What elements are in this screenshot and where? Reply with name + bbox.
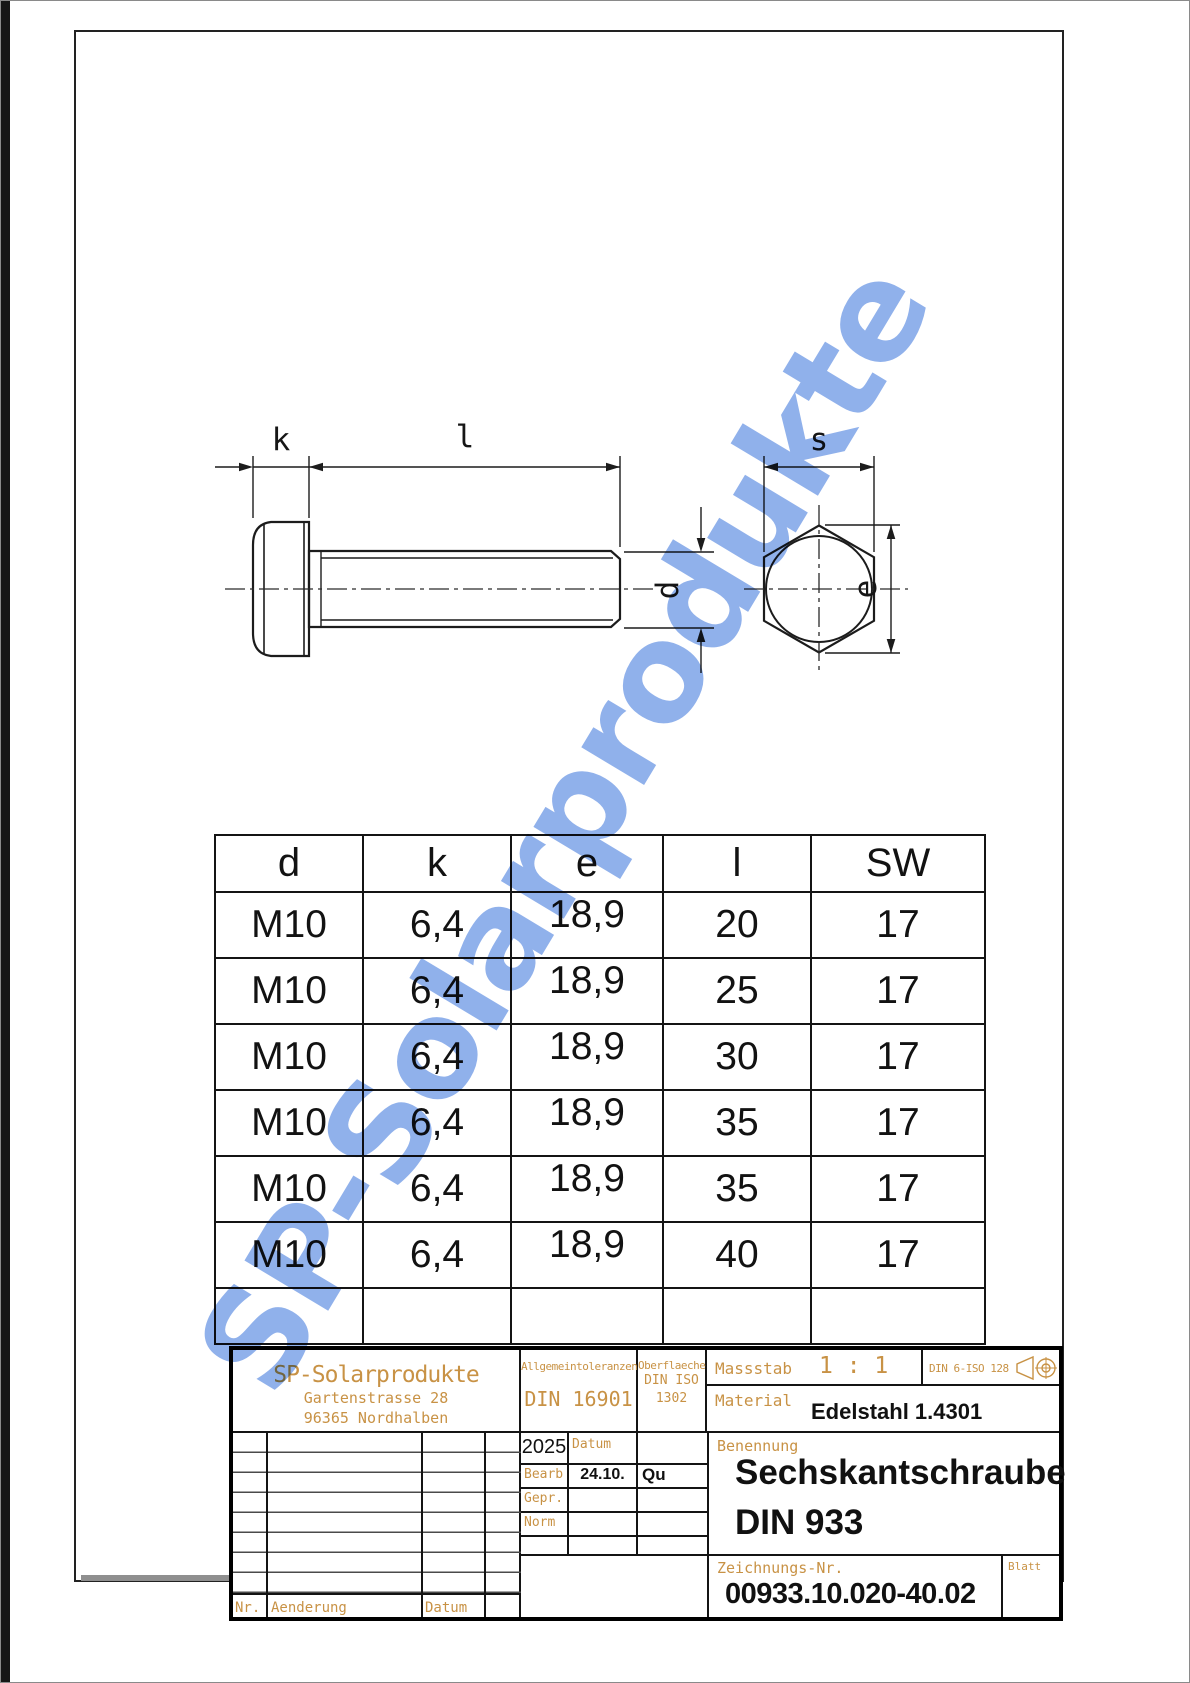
table-cell	[511, 1288, 663, 1344]
table-cell: 18,9	[511, 892, 663, 958]
table-cell: 18,9	[511, 1090, 663, 1156]
table-cell: 17	[811, 892, 985, 958]
table-cell: 35	[663, 1156, 811, 1222]
table-cell: 17	[811, 1222, 985, 1288]
company-address-2: 96365 Nordhalben	[233, 1408, 519, 1428]
table-cell: 6,4	[363, 958, 511, 1024]
table-cell: M10	[215, 958, 363, 1024]
approval-label: Bearb	[521, 1463, 567, 1482]
table-cell: 6,4	[363, 892, 511, 958]
table-cell: 6,4	[363, 1090, 511, 1156]
revision-label-row: Nr. Aenderung Datum	[233, 1593, 521, 1617]
drawing-number-label: Zeichnungs-Nr.	[717, 1559, 843, 1577]
table-cell: 17	[811, 958, 985, 1024]
company-name: SP-Solarprodukte	[233, 1362, 519, 1388]
title-block: SP-Solarprodukte Gartenstrasse 28 96365 …	[229, 1346, 1063, 1621]
bolt-views: k l s d e	[191, 416, 921, 706]
approval-row-gepr: Gepr.	[521, 1487, 707, 1513]
projection-cell: DIN 6-ISO 128	[921, 1350, 1059, 1386]
material-label: Material	[715, 1391, 792, 1410]
surface-label: Oberflaeche	[638, 1359, 705, 1372]
table-cell: 25	[663, 958, 811, 1024]
approvals-header-row: 2025 Datum	[521, 1433, 707, 1465]
designation-line2: DIN 933	[735, 1503, 863, 1543]
frame-bottom-segment	[81, 1575, 229, 1581]
approval-date: 24.10.	[569, 1466, 636, 1484]
revision-rows	[233, 1433, 521, 1594]
dimension-labels: k l s d e	[272, 419, 884, 599]
table-row: M106,418,94017	[215, 1222, 985, 1288]
tolerances-cell: Allgemeintoleranzen DIN 16901	[521, 1350, 638, 1433]
table-cell: 35	[663, 1090, 811, 1156]
col-header-d: d	[215, 835, 363, 892]
table-cell: 18,9	[511, 1222, 663, 1288]
approvals-year: 2025	[521, 1436, 567, 1459]
scan-edge-bar	[1, 1, 10, 1683]
dim-label-d: d	[650, 581, 686, 600]
revision-grid-line	[266, 1433, 268, 1617]
scale-label: Massstab	[715, 1359, 792, 1378]
projection-standard: DIN 6-ISO 128	[929, 1362, 1009, 1375]
empty-cell	[521, 1554, 707, 1617]
scale-value: 1 : 1	[819, 1353, 888, 1379]
approval-row-norm: Norm	[521, 1511, 707, 1537]
col-header-k: k	[363, 835, 511, 892]
projection-symbol-icon	[1015, 1355, 1057, 1381]
table-cell: 17	[811, 1156, 985, 1222]
surface-standard-line2: 1302	[638, 1390, 705, 1408]
dimension-table: d k e l SW M106,418,92017M106,418,92517M…	[214, 834, 986, 1345]
surface-cell: Oberflaeche DIN ISO 1302	[638, 1350, 707, 1433]
revision-change-label: Aenderung	[271, 1600, 347, 1616]
dim-label-s: s	[810, 422, 829, 458]
table-row: M106,418,93517	[215, 1156, 985, 1222]
table-row: M106,418,93017	[215, 1024, 985, 1090]
tolerances-label: Allgemeintoleranzen	[521, 1360, 636, 1373]
drawing-sheet: k l s d e d k e l SW M106,418,92017M106,…	[0, 0, 1190, 1683]
surface-standard-line1: DIN ISO	[638, 1372, 705, 1390]
centerlines	[225, 505, 908, 673]
scale-row: Massstab 1 : 1 DIN 6-ISO 128	[707, 1350, 1059, 1386]
designation-line1: Sechskantschraube	[735, 1453, 1066, 1493]
approval-label: Norm	[521, 1511, 567, 1530]
tolerances-value: DIN 16901	[521, 1387, 636, 1411]
approvals-date-header: Datum	[569, 1433, 636, 1452]
approval-row-bearb: Bearb 24.10. Qu	[521, 1463, 707, 1489]
table-cell: 17	[811, 1024, 985, 1090]
material-row: Material Edelstahl 1.4301	[707, 1386, 1059, 1433]
drawing-number-cell: Zeichnungs-Nr. 00933.10.020-40.02	[707, 1554, 1001, 1617]
table-cell: 30	[663, 1024, 811, 1090]
material-value: Edelstahl 1.4301	[811, 1399, 982, 1425]
table-cell: 17	[811, 1090, 985, 1156]
revision-date-label: Datum	[425, 1600, 467, 1616]
table-cell: 18,9	[511, 958, 663, 1024]
table-cell: M10	[215, 1222, 363, 1288]
designation-cell: Benennung Sechskantschraube DIN 933	[707, 1433, 1059, 1554]
sheet-cell: Blatt	[1001, 1554, 1059, 1617]
table-cell: 6,4	[363, 1024, 511, 1090]
table-row: M106,418,92517	[215, 958, 985, 1024]
table-cell: 6,4	[363, 1156, 511, 1222]
table-cell: 6,4	[363, 1222, 511, 1288]
drawing-number-value: 00933.10.020-40.02	[725, 1578, 976, 1611]
table-cell: M10	[215, 1090, 363, 1156]
table-cell: 40	[663, 1222, 811, 1288]
approval-name: Qu	[638, 1463, 707, 1485]
table-row: M106,418,92017	[215, 892, 985, 958]
table-cell: 18,9	[511, 1156, 663, 1222]
table-cell	[215, 1288, 363, 1344]
approval-row-empty	[521, 1535, 707, 1554]
dim-label-k: k	[272, 422, 291, 458]
table-cell: M10	[215, 1156, 363, 1222]
table-cell: M10	[215, 892, 363, 958]
col-header-sw: SW	[811, 835, 985, 892]
sheet-label: Blatt	[1008, 1560, 1041, 1573]
table-cell	[663, 1288, 811, 1344]
table-cell: 18,9	[511, 1024, 663, 1090]
dimension-table-body: M106,418,92017M106,418,92517M106,418,930…	[215, 892, 985, 1288]
company-address-1: Gartenstrasse 28	[233, 1388, 519, 1408]
revision-nr-label: Nr.	[235, 1600, 260, 1616]
col-header-l: l	[663, 835, 811, 892]
empty-row	[215, 1288, 985, 1344]
revision-grid-line	[484, 1433, 486, 1617]
table-cell	[363, 1288, 511, 1344]
approval-label: Gepr.	[521, 1487, 567, 1506]
revision-grid: Nr. Aenderung Datum	[233, 1433, 521, 1617]
col-header-e: e	[511, 835, 663, 892]
table-cell	[811, 1288, 985, 1344]
approvals-block: 2025 Datum Bearb 24.10. Qu Gepr. Norm	[521, 1433, 707, 1554]
table-row: M106,418,93517	[215, 1090, 985, 1156]
table-cell: 20	[663, 892, 811, 958]
table-cell: M10	[215, 1024, 363, 1090]
revision-grid-line	[421, 1433, 423, 1617]
table-header-row: d k e l SW	[215, 835, 985, 892]
dim-label-l: l	[456, 419, 475, 455]
company-cell: SP-Solarprodukte Gartenstrasse 28 96365 …	[233, 1350, 521, 1433]
dim-label-e: e	[848, 580, 884, 599]
